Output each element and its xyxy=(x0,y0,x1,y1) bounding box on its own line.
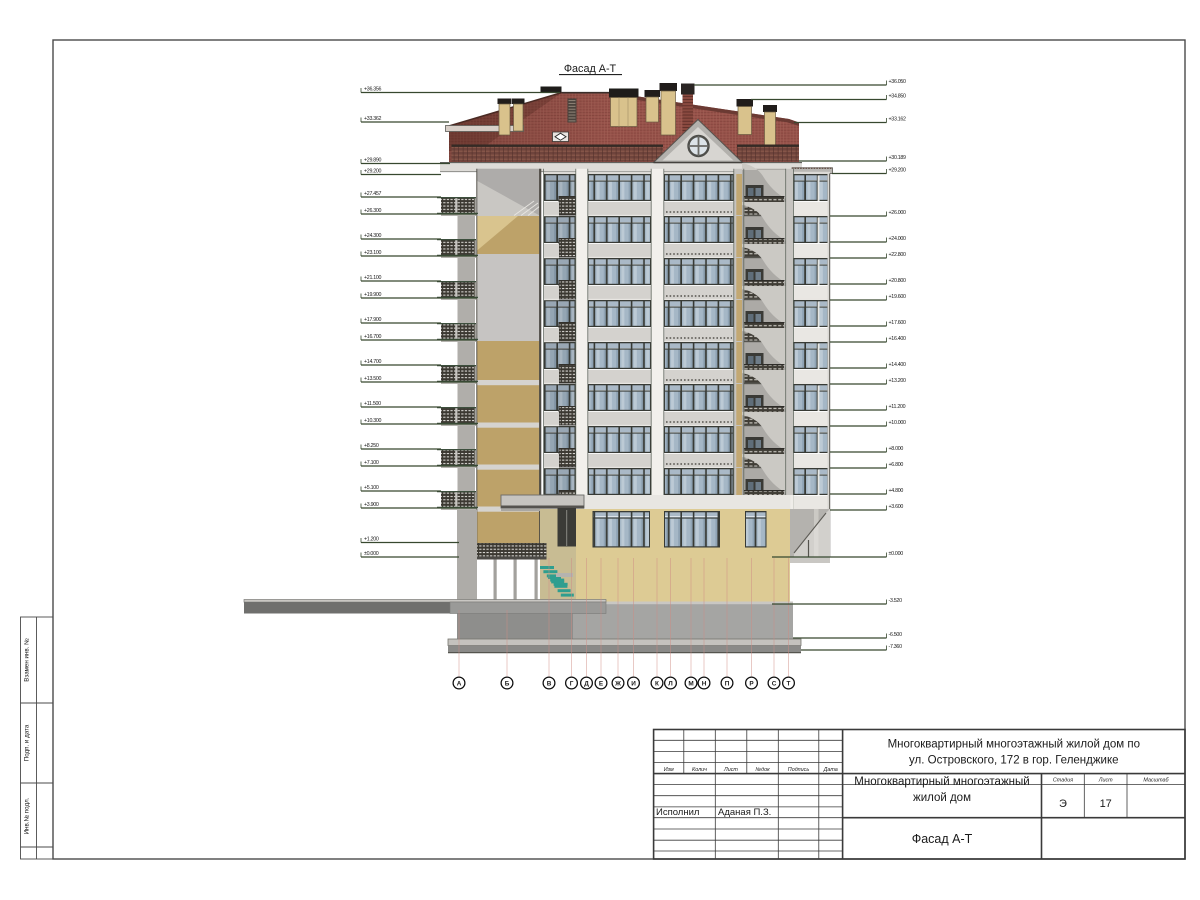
svg-text:Изм: Изм xyxy=(664,767,674,773)
svg-text:+33.162: +33.162 xyxy=(889,117,907,123)
svg-text:М: М xyxy=(688,680,693,687)
svg-text:±0.000: ±0.000 xyxy=(364,551,379,557)
svg-text:+21.100: +21.100 xyxy=(364,275,382,281)
svg-text:+17.600: +17.600 xyxy=(889,320,907,326)
svg-text:+33.362: +33.362 xyxy=(364,116,382,122)
svg-text:-6.500: -6.500 xyxy=(889,632,903,638)
svg-text:+1.200: +1.200 xyxy=(364,537,379,543)
svg-text:Многоквартирный многоэтажный ж: Многоквартирный многоэтажный жилой дом п… xyxy=(888,739,1140,751)
svg-text:Масштаб: Масштаб xyxy=(1143,778,1169,784)
svg-text:А: А xyxy=(457,680,462,687)
svg-text:+6.800: +6.800 xyxy=(889,462,904,468)
svg-text:Д: Д xyxy=(584,680,589,687)
svg-text:+8.000: +8.000 xyxy=(889,446,904,452)
svg-text:Дата: Дата xyxy=(823,767,838,773)
svg-text:+29.890: +29.890 xyxy=(364,158,382,164)
svg-text:Ж: Ж xyxy=(614,680,621,687)
svg-text:+16.400: +16.400 xyxy=(889,336,907,342)
svg-text:П: П xyxy=(725,680,730,687)
svg-text:+14.700: +14.700 xyxy=(364,359,382,365)
svg-text:+26.300: +26.300 xyxy=(364,208,382,214)
svg-text:Взамен инв. №: Взамен инв. № xyxy=(24,638,31,682)
svg-text:Фасад А-Т: Фасад А-Т xyxy=(564,63,617,75)
svg-text:Аданая П.З.: Аданая П.З. xyxy=(718,807,771,818)
svg-text:+20.800: +20.800 xyxy=(889,278,907,284)
svg-text:Инв.№ подл.: Инв.№ подл. xyxy=(24,797,31,834)
svg-text:Г: Г xyxy=(570,680,574,687)
svg-text:Фасад А-Т: Фасад А-Т xyxy=(912,832,973,846)
svg-text:+10.300: +10.300 xyxy=(364,418,382,424)
svg-text:Т: Т xyxy=(787,680,791,687)
svg-text:+17.900: +17.900 xyxy=(364,317,382,323)
svg-text:Стадия: Стадия xyxy=(1053,778,1073,784)
svg-text:+27.457: +27.457 xyxy=(364,191,382,197)
svg-text:+29.200: +29.200 xyxy=(364,169,382,175)
svg-text:Л: Л xyxy=(668,680,673,687)
svg-text:+36.356: +36.356 xyxy=(364,87,382,93)
svg-text:+11.200: +11.200 xyxy=(889,404,906,410)
svg-text:жилой дом: жилой дом xyxy=(913,792,971,804)
svg-text:+16.700: +16.700 xyxy=(364,334,382,340)
svg-text:Н: Н xyxy=(702,680,707,687)
svg-text:+3.900: +3.900 xyxy=(364,502,379,508)
svg-text:+5.100: +5.100 xyxy=(364,485,379,491)
svg-text:№док: №док xyxy=(755,767,770,773)
svg-text:+24.000: +24.000 xyxy=(889,236,907,242)
svg-text:Лист: Лист xyxy=(723,767,738,773)
svg-text:-3.520: -3.520 xyxy=(889,598,903,604)
svg-text:+13.500: +13.500 xyxy=(364,376,382,382)
svg-text:+4.800: +4.800 xyxy=(889,488,904,494)
svg-text:Исполнил: Исполнил xyxy=(656,807,699,818)
svg-text:+30.189: +30.189 xyxy=(889,155,907,161)
svg-text:+10.000: +10.000 xyxy=(889,420,907,426)
svg-text:В: В xyxy=(547,680,552,687)
svg-text:С: С xyxy=(772,680,777,687)
svg-text:+23.100: +23.100 xyxy=(364,250,382,256)
svg-text:+8.250: +8.250 xyxy=(364,443,379,449)
svg-text:±0.000: ±0.000 xyxy=(889,551,904,557)
svg-text:Подпись: Подпись xyxy=(788,767,810,773)
svg-text:+11.500: +11.500 xyxy=(364,401,381,407)
svg-text:К: К xyxy=(655,680,659,687)
svg-text:Колич: Колич xyxy=(692,767,707,773)
svg-text:Э: Э xyxy=(1059,798,1067,810)
svg-text:+34.850: +34.850 xyxy=(889,94,907,100)
svg-text:Р: Р xyxy=(749,680,754,687)
svg-text:+29.200: +29.200 xyxy=(889,168,907,174)
svg-text:+19.600: +19.600 xyxy=(889,294,907,300)
svg-text:+3.600: +3.600 xyxy=(889,504,904,510)
svg-text:Лист: Лист xyxy=(1098,778,1113,784)
svg-text:Подп. и дата: Подп. и дата xyxy=(24,724,31,761)
svg-text:ул. Островского, 172 в гор. Ге: ул. Островского, 172 в гор. Геленджике xyxy=(909,755,1119,767)
svg-text:+26.000: +26.000 xyxy=(889,210,907,216)
svg-text:-7.360: -7.360 xyxy=(889,644,903,650)
svg-text:И: И xyxy=(631,680,636,687)
svg-text:17: 17 xyxy=(1100,798,1112,810)
svg-text:+7.100: +7.100 xyxy=(364,460,379,466)
svg-text:Е: Е xyxy=(599,680,604,687)
svg-text:+24.300: +24.300 xyxy=(364,233,382,239)
svg-text:Б: Б xyxy=(505,680,510,687)
svg-text:+13.200: +13.200 xyxy=(889,378,907,384)
svg-text:Многоквартирный многоэтажный: Многоквартирный многоэтажный xyxy=(854,776,1029,788)
svg-text:+36.050: +36.050 xyxy=(889,79,907,85)
svg-text:+14.400: +14.400 xyxy=(889,362,907,368)
svg-text:+22.800: +22.800 xyxy=(889,252,907,258)
svg-text:+19.900: +19.900 xyxy=(364,292,382,298)
